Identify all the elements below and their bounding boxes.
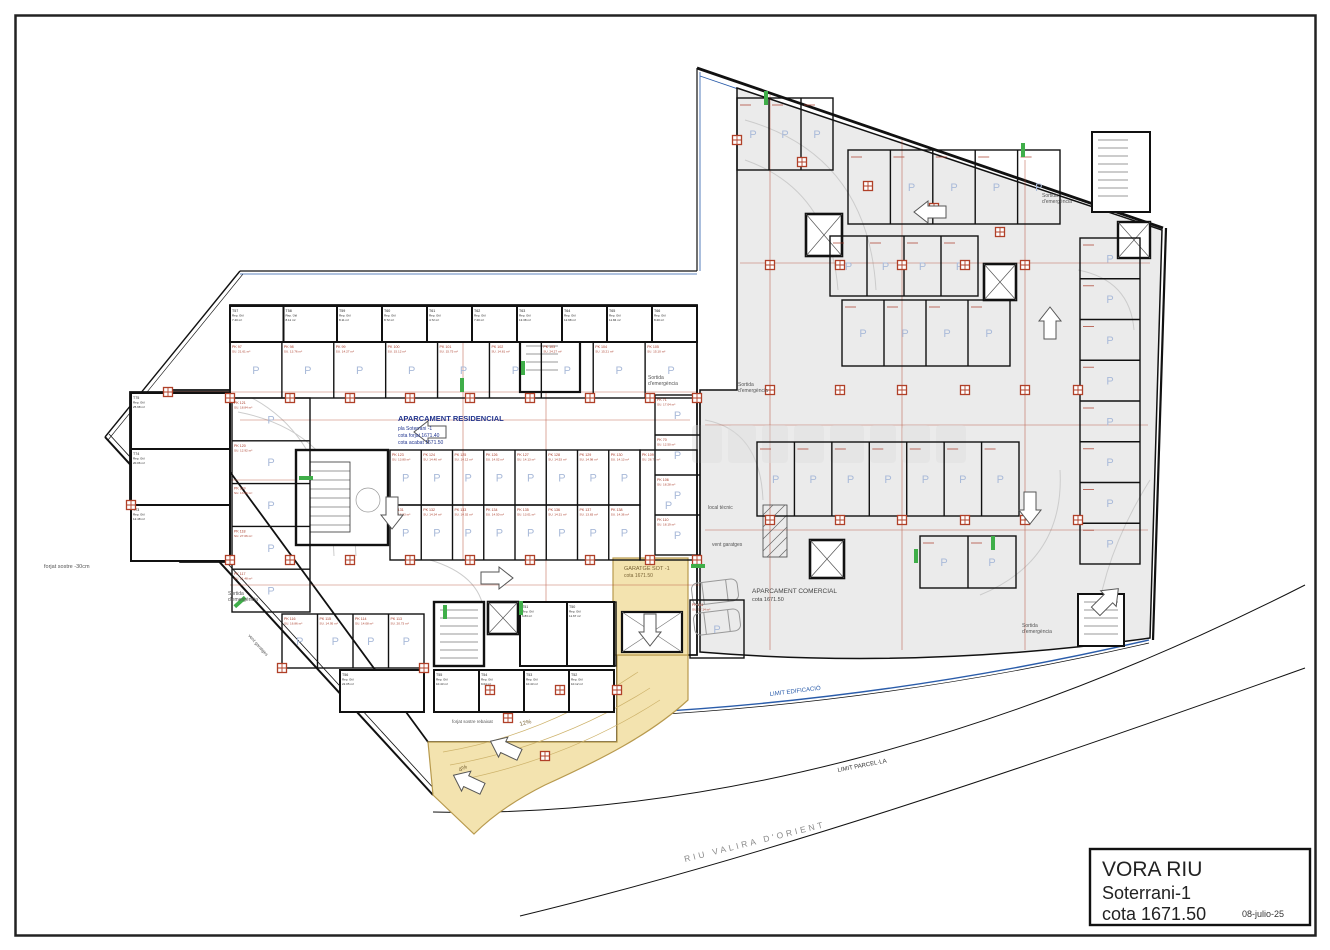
stall-area: SU. 14.81 m² — [491, 350, 509, 354]
elevator-core-3 — [984, 264, 1016, 300]
stall-group-left-wing-storage: T75Rep. Útil25.98 m²T74Rep. Útil20.06 m²… — [131, 393, 230, 561]
stall-area: SU. 14.02 m² — [486, 458, 504, 462]
parking-p-mark: P — [367, 636, 374, 648]
stall-area: SU. 21.48 m² — [234, 577, 252, 581]
garage-note-title: GARATGE SOT -1 — [624, 566, 670, 572]
parking-p-mark: P — [1106, 253, 1113, 265]
parking-p-mark: P — [1106, 416, 1113, 428]
vent-label-1: vent garatges — [712, 542, 743, 548]
parking-p-mark: P — [332, 636, 339, 648]
column-marker — [420, 664, 429, 673]
stall-id: T74 — [133, 452, 139, 456]
emergency-exit-marker — [764, 91, 768, 105]
stall-id: PK 128 — [548, 453, 560, 457]
stall-area: SU. 13.86 m² — [234, 491, 252, 495]
column-marker — [613, 686, 622, 695]
stall-id: PK 116 — [284, 617, 296, 621]
parking-p-mark: P — [674, 450, 681, 462]
column-marker — [961, 516, 970, 525]
stall-area: SU. 12.92 m² — [234, 448, 252, 452]
stall-area: SU. 13.80 m² — [392, 458, 410, 462]
stall-id: PK 109 — [642, 453, 654, 457]
stall-area: 8.11 m² — [339, 318, 349, 322]
stall-area: 12.48 m² — [133, 517, 145, 521]
stall-area: 25.98 m² — [133, 405, 145, 409]
stall-group-bottom-storage-c: T51Rep. Útil6.83 m²T50Rep. Útil11.67 m² — [520, 602, 614, 666]
column-marker — [466, 556, 475, 565]
stall-id: T60 — [384, 309, 390, 313]
stall-area: 22.05 m² — [342, 682, 354, 686]
stall-id: PK 99 — [336, 345, 346, 349]
parking-p-mark: P — [267, 414, 274, 426]
column-marker — [526, 394, 535, 403]
parking-p-mark: P — [615, 365, 622, 377]
stall-area: SU. 14.40 m² — [423, 458, 441, 462]
elevator-core-4 — [810, 540, 844, 578]
stall-id: T57 — [232, 309, 238, 313]
stall-id: T58 — [286, 309, 292, 313]
parking-p-mark: P — [1106, 539, 1113, 551]
stall-area: SU. 21.61 m² — [232, 350, 250, 354]
stall-group-bottom-storage-b: T55Rep. Útil10.43 m²T54Rep. Útil9.04 m²T… — [434, 670, 614, 712]
parking-p-mark: P — [356, 365, 363, 377]
stall-area: 12.98 m² — [564, 318, 576, 322]
stall-area: 11.84 m² — [609, 318, 621, 322]
parking-p-mark: P — [847, 474, 854, 486]
emergency-exit-marker — [991, 536, 995, 550]
stall-id: T63 — [519, 309, 525, 313]
stall-id: PK 119 — [234, 487, 246, 491]
stall-area: SU. 14.13 m² — [611, 458, 629, 462]
stall-id: T54 — [481, 673, 487, 677]
emergency-exit-marker — [460, 378, 464, 392]
title-level: Soterrani-1 — [1102, 883, 1191, 903]
column-marker — [996, 228, 1005, 237]
column-marker — [164, 388, 173, 397]
stall-area: SU. 18.28 m² — [657, 483, 675, 487]
stall-id: PK 111 — [692, 603, 703, 607]
parking-p-mark: P — [402, 473, 409, 485]
parking-p-mark: P — [1106, 498, 1113, 510]
parking-p-mark: P — [589, 473, 596, 485]
emergency-exit-marker — [914, 549, 918, 563]
stall-sub: Rep. Útil — [522, 609, 534, 614]
stall-sub: Rep. Útil — [474, 313, 486, 318]
emergency-exit-marker — [1021, 143, 1025, 157]
stair-core-bottom — [434, 602, 484, 666]
parking-p-mark: P — [997, 474, 1004, 486]
exit-label-2b: d'emergència — [738, 388, 768, 394]
column-marker — [898, 386, 907, 395]
stall-sub: Rep. Útil — [481, 677, 493, 682]
column-marker — [836, 261, 845, 270]
column-marker — [646, 556, 655, 565]
stall-area: SU. 12.50 m² — [657, 443, 675, 447]
column-marker — [541, 752, 550, 761]
column-marker — [836, 516, 845, 525]
parking-p-mark: P — [589, 528, 596, 540]
parking-p-mark: P — [403, 636, 410, 648]
stall-sub: Rep. Útil — [609, 313, 621, 318]
stall-area: SU. 14.98 m² — [580, 458, 598, 462]
stall-area: 8.72 m² — [384, 318, 394, 322]
stall-area: 7.40 m² — [232, 318, 242, 322]
parking-p-mark: P — [674, 490, 681, 502]
stall-id: PK 135 — [517, 508, 529, 512]
stall-id: PK 105 — [647, 345, 659, 349]
stall-area: 10.43 m² — [436, 682, 448, 686]
stall-id: PK 118 — [234, 529, 246, 533]
stall-area: SU. 16.86 m² — [284, 622, 302, 626]
parking-p-mark: P — [993, 182, 1000, 194]
parking-p-mark: P — [919, 261, 926, 273]
column-marker — [693, 394, 702, 403]
column-marker — [346, 556, 355, 565]
parking-p-mark: P — [267, 586, 274, 598]
stall-area: SU. 20.73 m² — [391, 622, 409, 626]
column-marker — [586, 556, 595, 565]
stall-area: 8.11 m² — [286, 318, 296, 322]
parking-p-mark: P — [749, 129, 756, 141]
parking-p-mark: P — [940, 557, 947, 569]
parking-p-mark: P — [959, 474, 966, 486]
stall-area: SU. 14.12 m² — [455, 458, 473, 462]
parking-p-mark: P — [922, 474, 929, 486]
parking-p-mark: P — [809, 474, 816, 486]
column-marker — [286, 556, 295, 565]
floor-plan-canvas: T57Rep. Útil7.40 m²T58Rep. Útil8.11 m²T5… — [0, 0, 1330, 950]
stall-area: 8.20 m² — [654, 318, 664, 322]
column-marker — [127, 501, 136, 510]
parking-p-mark: P — [460, 365, 467, 377]
stall-area: SU. 14.53 m² — [548, 458, 566, 462]
elevator-core-2 — [806, 214, 842, 256]
stall-id: PK 106 — [657, 478, 669, 482]
parking-p-mark: P — [296, 636, 303, 648]
parking-p-mark: P — [665, 500, 672, 512]
stall-area: SU. 27.06 m² — [234, 534, 252, 538]
stall-sub: Rep. Útil — [232, 313, 244, 318]
parking-p-mark: P — [1106, 294, 1113, 306]
parking-p-mark: P — [713, 624, 720, 636]
stall-id: PK 132 — [423, 508, 435, 512]
parking-p-mark: P — [985, 328, 992, 340]
emergency-exit-marker — [691, 564, 705, 568]
stall-area: SU. 13.83 m² — [580, 513, 598, 517]
stall-area: SU. 14.95 m² — [320, 622, 338, 626]
stall-area: SU. 13.01 m² — [517, 513, 535, 517]
commercial-note-l2: cota 1671.50 — [752, 597, 784, 603]
parking-p-mark: P — [882, 261, 889, 273]
stall-id: T59 — [339, 309, 345, 313]
exit-label-1b: d'emergència — [648, 381, 678, 387]
stall-id: T66 — [654, 309, 660, 313]
stall-area: 10.12 m² — [571, 682, 583, 686]
parking-p-mark: P — [845, 261, 852, 273]
stall-sub: Rep. Útil — [133, 400, 145, 405]
stall-id: T65 — [609, 309, 615, 313]
stall-area: SU. 15.12 m² — [388, 350, 406, 354]
stall-sub: Rep. Útil — [342, 677, 354, 682]
stall-area: SU. 18.19 m² — [657, 523, 675, 527]
commercial-note-title: APARCAMENT COMERCIAL — [752, 588, 837, 595]
stall-area: SU. 14.02 m² — [455, 513, 473, 517]
parking-p-mark: P — [512, 365, 519, 377]
stall-id: T55 — [436, 673, 442, 677]
parking-p-mark: P — [1106, 457, 1113, 469]
column-marker — [526, 556, 535, 565]
column-marker — [898, 261, 907, 270]
parking-p-mark: P — [621, 473, 628, 485]
stall-area: SU. 15.21 m² — [595, 350, 613, 354]
column-marker — [864, 182, 873, 191]
stall-id: PK 134 — [486, 508, 498, 512]
parking-p-mark: P — [884, 474, 891, 486]
parking-p-mark: P — [901, 328, 908, 340]
stall-group-bottom-storage-a: T56Rep. Útil22.05 m² — [340, 670, 424, 712]
parking-p-mark: P — [558, 528, 565, 540]
stall-area: SU. 14.31 m² — [548, 513, 566, 517]
parking-p-mark: P — [564, 365, 571, 377]
stall-id: PK 71 — [657, 398, 667, 402]
column-marker — [766, 261, 775, 270]
column-marker — [278, 664, 287, 673]
stall-id: PK 110 — [657, 518, 669, 522]
parking-p-mark: P — [813, 129, 820, 141]
stall-id: PK 113 — [391, 617, 403, 621]
column-marker — [556, 686, 565, 695]
stall-id: T56 — [342, 673, 348, 677]
column-marker — [766, 516, 775, 525]
stall-area: SU. 14.27 m² — [336, 350, 354, 354]
column-marker — [226, 556, 235, 565]
parking-p-mark: P — [527, 528, 534, 540]
column-marker — [646, 394, 655, 403]
stall-id: T75 — [133, 396, 139, 400]
stall-sub: Rep. Útil — [654, 313, 666, 318]
stall-id: T50 — [569, 605, 575, 609]
emergency-exit-marker — [443, 605, 447, 619]
column-marker — [406, 394, 415, 403]
stall-sub: Rep. Útil — [286, 313, 298, 318]
column-marker — [586, 394, 595, 403]
stall-area: 11.67 m² — [569, 614, 581, 618]
parking-p-mark: P — [674, 530, 681, 542]
column-marker — [286, 394, 295, 403]
stall-area: 7.20 m² — [474, 318, 484, 322]
parking-p-mark: P — [621, 528, 628, 540]
stall-id: PK 98 — [284, 345, 294, 349]
stall-sub: Rep. Útil — [526, 677, 538, 682]
stall-area: SU. 14.08 m² — [355, 622, 373, 626]
column-marker — [798, 158, 807, 167]
stall-id: PK 127 — [517, 453, 529, 457]
stall-area: SU. 28.71 m² — [642, 458, 660, 462]
stall-sub: Rep. Útil — [519, 313, 531, 318]
plan-sheet: T57Rep. Útil7.40 m²T58Rep. Útil8.11 m²T5… — [0, 0, 1330, 950]
column-marker — [898, 516, 907, 525]
column-marker — [1021, 386, 1030, 395]
parking-p-mark: P — [908, 182, 915, 194]
stall-sub: Rep. Útil — [133, 512, 145, 517]
stall-id: PK 138 — [611, 508, 623, 512]
column-marker — [346, 394, 355, 403]
stall-id: T52 — [571, 673, 577, 677]
emergency-exit-marker — [299, 476, 313, 480]
parking-p-mark: P — [674, 410, 681, 422]
emergency-exit-marker — [519, 601, 523, 615]
stall-id: PK 120 — [234, 444, 246, 448]
residential-note-l3: cota forjat 1671.40 — [398, 433, 440, 439]
forjat-rebaixat-label: forjat sostre rebaixat — [452, 719, 494, 724]
stall-area: 10.43 m² — [526, 682, 538, 686]
title-project: VORA RIU — [1102, 858, 1202, 881]
stall-area: 20.06 m² — [133, 461, 145, 465]
stall-id: PK 130 — [611, 453, 623, 457]
stall-id: PK 121 — [234, 401, 246, 405]
stall-id: PK 137 — [580, 508, 592, 512]
stall-id: PK 97 — [232, 345, 242, 349]
stall-id: PK 103 — [543, 345, 555, 349]
parking-p-mark: P — [464, 528, 471, 540]
stall-id: PK 70 — [657, 438, 667, 442]
parking-p-mark: P — [408, 365, 415, 377]
stall-id: PK 100 — [388, 345, 400, 349]
parking-p-mark: P — [667, 365, 674, 377]
parking-p-mark: P — [781, 129, 788, 141]
stall-id: T62 — [474, 309, 480, 313]
stall-sub: Rep. Útil — [569, 609, 581, 614]
column-marker — [1074, 516, 1083, 525]
garage-note-l2: cota 1671.50 — [624, 573, 653, 579]
stall-sub: Rep. Útil — [133, 456, 145, 461]
column-marker — [466, 394, 475, 403]
parking-p-mark: P — [527, 473, 534, 485]
stall-area: SU. 24.27 m² — [543, 350, 561, 354]
stall-id: PK 117 — [234, 572, 246, 576]
column-marker — [1074, 386, 1083, 395]
stall-area: 4.72 m² — [429, 318, 439, 322]
stall-area: SU. 14.13 m² — [517, 458, 535, 462]
stall-sub: Rep. Útil — [339, 313, 351, 318]
stall-id: PK 125 — [455, 453, 467, 457]
parking-p-mark: P — [402, 528, 409, 540]
column-marker — [406, 556, 415, 565]
column-marker — [961, 261, 970, 270]
stall-area: SU. 17.14 m² — [692, 608, 710, 612]
column-marker — [733, 136, 742, 145]
stall-area: SU. 14.36 m² — [611, 513, 629, 517]
stall-id: PK 129 — [580, 453, 592, 457]
parking-p-mark: P — [950, 182, 957, 194]
residential-note-l4: cota acabat 1671.50 — [398, 440, 444, 446]
title-elevation: cota 1671.50 — [1102, 904, 1206, 924]
parking-p-mark: P — [1106, 376, 1113, 388]
stall-area: SU. 14.50 m² — [486, 513, 504, 517]
parking-p-mark: P — [558, 473, 565, 485]
stall-id: PK 136 — [548, 508, 560, 512]
parking-p-mark: P — [988, 557, 995, 569]
stall-area: SU. 18.84 m² — [234, 406, 252, 410]
column-marker — [1021, 261, 1030, 270]
stall-id: PK 123 — [392, 453, 404, 457]
stall-group-storage-top-left: T57Rep. Útil7.40 m²T58Rep. Útil8.11 m² — [230, 306, 337, 342]
parking-p-mark: P — [267, 500, 274, 512]
stall-sub: Rep. Útil — [384, 313, 396, 318]
stall-id: T64 — [564, 309, 570, 313]
forjat-sostre-label: forjat sostre -30cm — [44, 564, 90, 570]
parking-p-mark: P — [252, 365, 259, 377]
parking-p-mark: P — [304, 365, 311, 377]
stall-id: PK 115 — [320, 617, 332, 621]
stall-sub: Rep. Útil — [571, 677, 583, 682]
parking-p-mark: P — [943, 328, 950, 340]
parking-p-mark: P — [433, 473, 440, 485]
stall-area: 6.83 m² — [522, 614, 532, 618]
parking-p-mark: P — [464, 473, 471, 485]
parking-p-mark: P — [496, 528, 503, 540]
stall-sub: Rep. Útil — [564, 313, 576, 318]
title-block: VORA RIU Soterrani-1 cota 1671.50 08-jul… — [1090, 849, 1310, 925]
stall-area: SU. 14.34 m² — [423, 513, 441, 517]
stall-area: SU. 15.75 m² — [440, 350, 458, 354]
column-marker — [504, 714, 513, 723]
residential-note-title: APARCAMENT RESIDENCIAL — [398, 414, 504, 423]
parking-p-mark: P — [772, 474, 779, 486]
stall-area: SU. 17.04 m² — [657, 403, 675, 407]
stall-id: PK 114 — [355, 617, 367, 621]
stall-id: PK 102 — [491, 345, 503, 349]
column-marker — [226, 394, 235, 403]
parking-p-mark: P — [267, 543, 274, 555]
stall-sub: Rep. Útil — [436, 677, 448, 682]
stall-id: PK 101 — [440, 345, 452, 349]
parking-p-mark: P — [1106, 335, 1113, 347]
stall-id: T61 — [429, 309, 435, 313]
elevator-core-1 — [488, 602, 518, 634]
stall-sub: Rep. Útil — [429, 313, 441, 318]
parking-p-mark: P — [433, 528, 440, 540]
column-marker — [486, 686, 495, 695]
local-tecnic-label: local tècnic — [708, 505, 733, 511]
exit-label-3b: d'emergència — [1042, 199, 1072, 205]
residential-note-l2: pla Soterrani -1 — [398, 426, 432, 432]
parking-p-mark: P — [267, 457, 274, 469]
stall-area: SU. 15.10 m² — [647, 350, 665, 354]
stall-group-storage-top: T59Rep. Útil8.11 m²T60Rep. Útil8.72 m²T6… — [337, 306, 697, 342]
stall-id: PK 124 — [423, 453, 435, 457]
exit-label-5b: d'emergència — [228, 597, 258, 603]
stall-id: PK 126 — [486, 453, 498, 457]
parking-p-mark: P — [496, 473, 503, 485]
stall-area: 13.38 m² — [519, 318, 531, 322]
column-marker — [961, 386, 970, 395]
stall-id: T53 — [526, 673, 532, 677]
title-date: 08-julio-25 — [1242, 909, 1284, 919]
stall-id: PK 104 — [595, 345, 607, 349]
emergency-exit-marker — [521, 361, 525, 375]
stall-area: SU. 13.76 m² — [284, 350, 302, 354]
column-marker — [836, 386, 845, 395]
column-marker — [693, 556, 702, 565]
parking-p-mark: P — [859, 328, 866, 340]
stall-id: PK 133 — [455, 508, 467, 512]
exit-label-4b: d'emergència — [1022, 629, 1052, 635]
